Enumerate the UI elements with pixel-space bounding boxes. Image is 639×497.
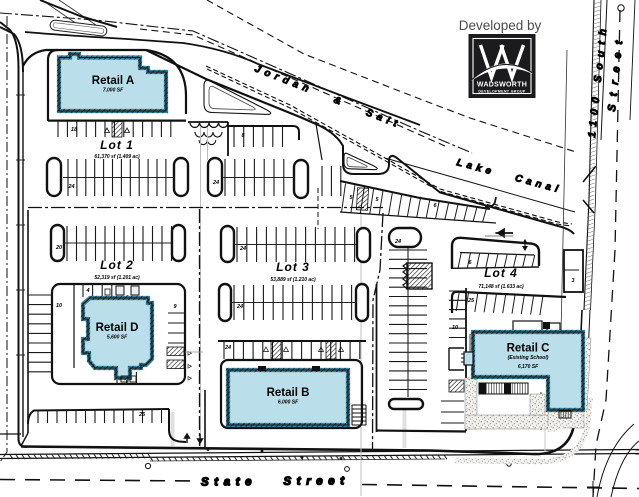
svg-text:5,600 SF: 5,600 SF	[107, 335, 128, 341]
svg-text:Retail C: Retail C	[507, 343, 550, 355]
svg-text:25: 25	[467, 298, 475, 304]
svg-text:24: 24	[239, 246, 246, 252]
svg-text:Retail A: Retail A	[92, 75, 134, 87]
svg-text:10: 10	[56, 303, 62, 309]
svg-text:3: 3	[571, 278, 574, 284]
svg-text:24: 24	[212, 180, 219, 186]
svg-text:(Existing School): (Existing School)	[508, 355, 549, 361]
svg-text:53,889 sf (1.210 ac): 53,889 sf (1.210 ac)	[270, 277, 316, 283]
svg-text:WADSWORTH: WADSWORTH	[477, 82, 527, 89]
svg-text:7,000 SF: 7,000 SF	[103, 88, 124, 94]
svg-text:20: 20	[55, 245, 62, 251]
svg-text:4: 4	[85, 288, 89, 294]
svg-text:61,370 sf (1.409 ac): 61,370 sf (1.409 ac)	[94, 154, 140, 160]
svg-text:Lot 2: Lot 2	[100, 258, 134, 272]
svg-text:24: 24	[67, 184, 74, 190]
svg-text:6,170 SF: 6,170 SF	[518, 364, 539, 370]
svg-text:24: 24	[224, 345, 231, 351]
svg-text:6,000 SF: 6,000 SF	[278, 400, 299, 406]
svg-text:52,319 sf (1.201 ac): 52,319 sf (1.201 ac)	[94, 275, 140, 281]
svg-text:State Street: State Street	[201, 475, 350, 488]
svg-text:24: 24	[394, 239, 401, 245]
svg-text:Retail D: Retail D	[96, 322, 139, 334]
svg-text:24: 24	[236, 304, 243, 310]
svg-text:Lot 3: Lot 3	[276, 260, 310, 274]
svg-text:Lot 1: Lot 1	[100, 138, 134, 152]
svg-text:Retail B: Retail B	[267, 387, 310, 399]
svg-text:71,148 sf (1.633 ac): 71,148 sf (1.633 ac)	[478, 284, 524, 290]
svg-text:Developed by: Developed by	[459, 18, 542, 33]
svg-text:25: 25	[138, 412, 146, 418]
svg-text:Lot 4: Lot 4	[484, 266, 518, 280]
svg-text:DEVELOPMENT GROUP: DEVELOPMENT GROUP	[478, 90, 526, 94]
svg-text:18: 18	[71, 127, 78, 133]
